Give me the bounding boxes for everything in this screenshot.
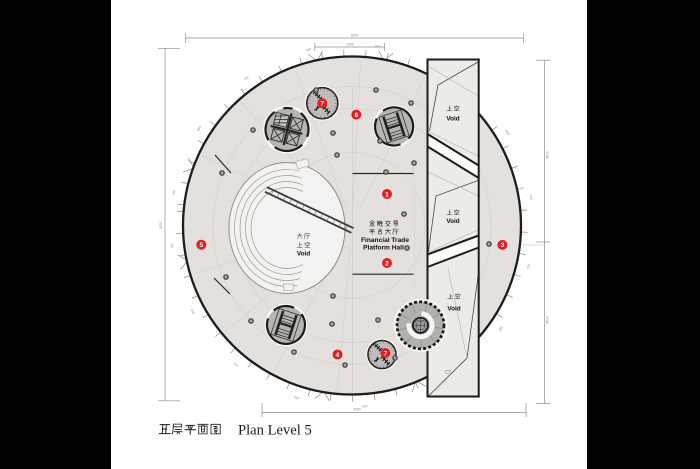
svg-text:750: 750 [362,404,368,409]
svg-text:750: 750 [374,44,380,48]
svg-text:Platform Hall: Platform Hall [363,245,404,252]
svg-text:9000: 9000 [159,221,163,229]
svg-text:7: 7 [384,350,388,357]
svg-text:750: 750 [172,190,177,196]
svg-text:9000: 9000 [353,408,361,412]
svg-text:6: 6 [354,112,358,119]
svg-text:1: 1 [385,191,389,198]
svg-text:9000: 9000 [351,33,359,37]
svg-text:4: 4 [336,352,340,359]
svg-text:4500: 4500 [546,316,550,324]
svg-text:Void: Void [447,306,460,313]
svg-text:1500: 1500 [346,43,354,47]
svg-text:7: 7 [320,101,324,108]
svg-text:2: 2 [385,260,389,267]
svg-text:Void: Void [446,116,459,123]
svg-text:Void: Void [297,251,310,258]
svg-text:Void: Void [446,218,459,225]
svg-text:3: 3 [501,242,505,249]
svg-text:4500: 4500 [546,151,550,159]
svg-text:Plan Level 5: Plan Level 5 [238,423,312,439]
svg-text:Financial Trade: Financial Trade [361,237,409,244]
svg-text:5: 5 [199,242,203,249]
